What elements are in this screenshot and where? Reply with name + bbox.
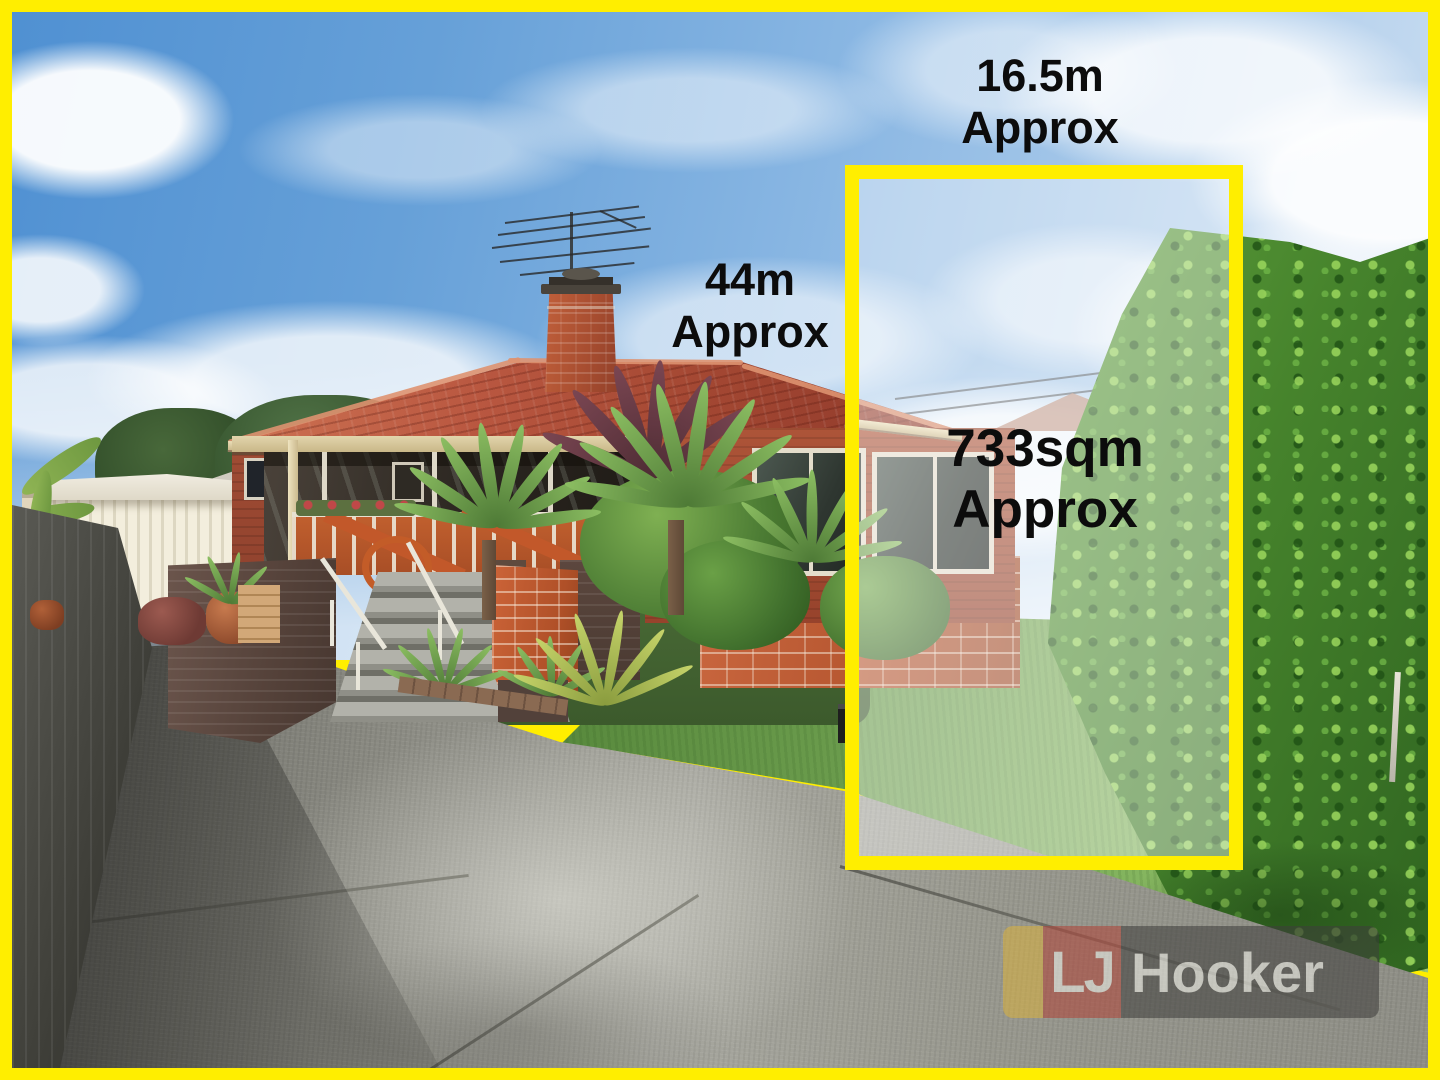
frontage-qualifier: Approx [880, 102, 1200, 154]
yucca-trunk [482, 540, 496, 620]
handrail-post [356, 642, 360, 690]
frontage-label: 16.5m Approx [880, 50, 1200, 154]
ljhooker-logo: LJ Hooker [1003, 926, 1379, 1018]
driveway-joint [429, 894, 699, 1071]
area-label: 733sqm Approx [860, 418, 1230, 541]
picture-frame [392, 462, 424, 502]
depth-value: 44m [620, 254, 880, 306]
flower-pot [138, 597, 206, 645]
area-value: 733sqm [860, 418, 1230, 479]
handrail-post [330, 600, 334, 646]
brick-stack [238, 585, 280, 643]
flower-pot [30, 600, 64, 630]
logo-yellow-bar [1003, 926, 1043, 1018]
area-qualifier: Approx [860, 479, 1230, 540]
logo-wordmark: Hooker [1121, 926, 1379, 1018]
depth-label: 44m Approx [620, 254, 880, 358]
depth-qualifier: Approx [620, 306, 880, 358]
yucca-trunk [668, 520, 684, 615]
chimney-vent [562, 268, 600, 280]
chimney-band [547, 306, 615, 309]
chimney-cap [541, 284, 621, 294]
logo-initials: LJ [1043, 926, 1121, 1018]
frontage-value: 16.5m [880, 50, 1200, 102]
property-photo-frame: 16.5m Approx 44m Approx 733sqm Approx LJ… [0, 0, 1440, 1080]
